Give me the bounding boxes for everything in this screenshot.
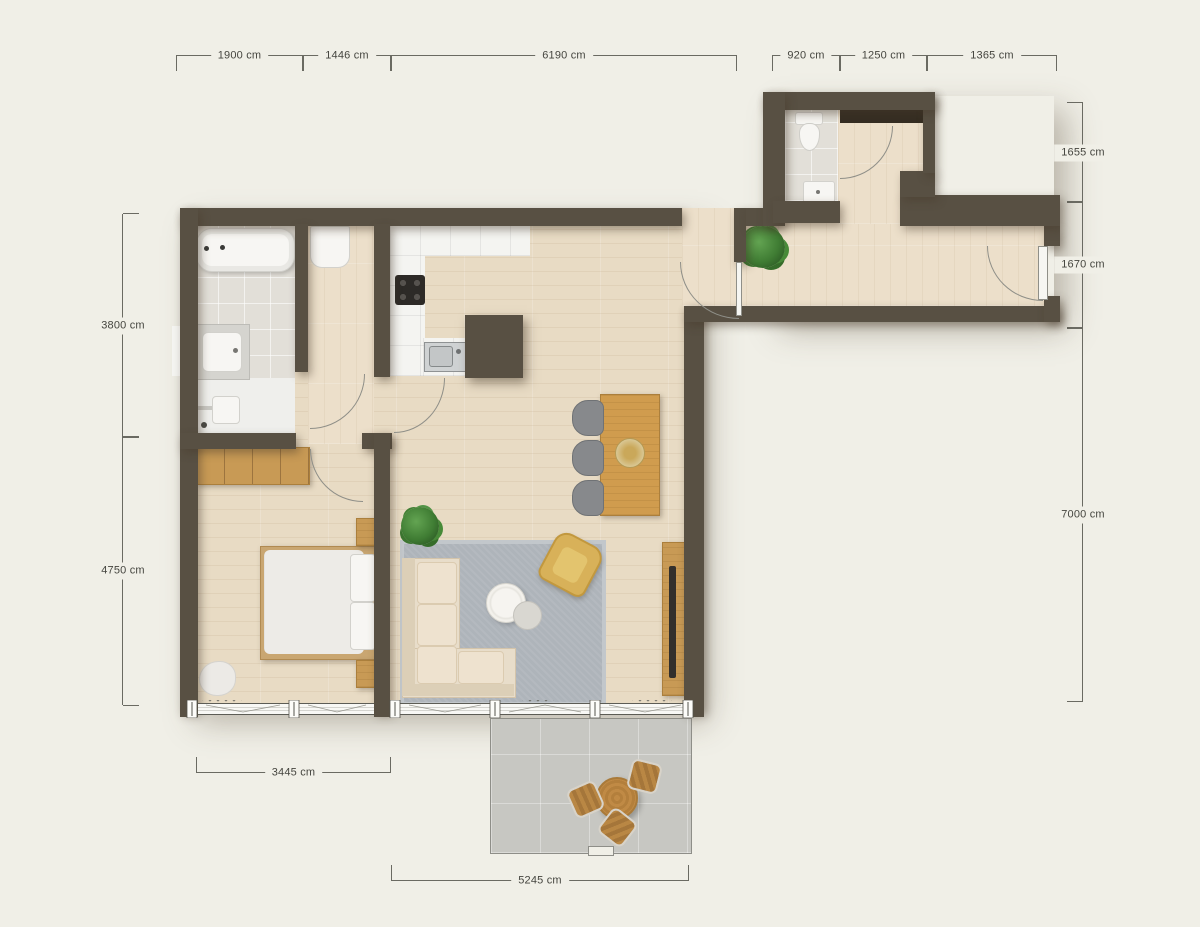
sofa-back-bottom <box>402 684 514 696</box>
wc-sink-tap <box>816 190 820 194</box>
bathtub-drain <box>204 246 209 251</box>
dim-bottom-2: 5245 cm <box>391 880 689 881</box>
dining-chair-2 <box>572 440 604 476</box>
sofa-cushion-4 <box>458 651 504 684</box>
sofa-back-left <box>402 558 415 696</box>
dim-top-4: 920 cm <box>772 55 840 56</box>
washing-machine <box>310 226 350 268</box>
sofa-cushion-2 <box>417 604 457 646</box>
wall-left <box>180 208 198 712</box>
dim-right-3: 7000 cm <box>1082 328 1083 701</box>
dim-right-2: 1670 cm <box>1082 202 1083 328</box>
entrance-door-leaf <box>1038 246 1048 300</box>
wall-wc-bottom <box>773 201 840 223</box>
coffee-table-small <box>513 601 542 630</box>
dim-label: 4750 cm <box>94 563 152 580</box>
wall-bathroom-right <box>295 224 308 372</box>
floor-plan: 1900 cm 1446 cm 6190 cm 920 cm 1250 cm 1… <box>0 0 1200 927</box>
kitchen-sink-basin <box>429 346 453 367</box>
dim-right-1: 1655 cm <box>1082 103 1083 202</box>
dim-label: 920 cm <box>780 48 831 65</box>
dim-label: 3445 cm <box>265 765 323 782</box>
dim-left-2: 4750 cm <box>122 437 123 705</box>
wall-top-main <box>180 208 682 226</box>
dim-label: 6190 cm <box>535 48 593 65</box>
bathroom-sink-tap <box>233 348 238 353</box>
dim-top-3: 6190 cm <box>391 55 737 56</box>
dim-bottom-1: 3445 cm <box>196 772 391 773</box>
bed-pillow-2 <box>350 602 376 650</box>
dim-label: 1670 cm <box>1054 257 1112 274</box>
dim-top-2: 1446 cm <box>303 55 391 56</box>
wall-entrance-top-jamb <box>1044 226 1060 246</box>
plant-living-icon <box>401 507 439 545</box>
dim-top-1: 1900 cm <box>176 55 303 56</box>
dim-top-5: 1250 cm <box>840 55 927 56</box>
cooktop <box>395 275 425 305</box>
entry-closet <box>840 108 923 123</box>
plant-corridor-icon <box>741 226 785 268</box>
pouf <box>199 661 236 696</box>
corridor-door-leaf <box>736 262 742 316</box>
wall-living-right <box>684 306 704 712</box>
wall-entry-step <box>900 171 935 197</box>
wall-corridor-top-right <box>900 195 1060 226</box>
dim-label: 5245 cm <box>511 873 569 890</box>
tv <box>669 566 676 678</box>
shower-unit <box>212 396 240 424</box>
shower-pipe <box>198 406 212 410</box>
dim-top-6: 1365 cm <box>927 55 1057 56</box>
shower-drain <box>201 422 207 428</box>
dim-label: 1250 cm <box>855 48 913 65</box>
wall-hallway-right-upper <box>374 224 390 377</box>
wall-wc-top <box>763 92 935 110</box>
wall-bedroom-right <box>374 433 390 712</box>
wall-door-stub <box>734 208 746 262</box>
dining-chair-1 <box>572 400 604 436</box>
bathtub-faucet <box>220 245 225 250</box>
bathtub <box>196 228 295 272</box>
window-band <box>180 700 704 718</box>
dim-label: 1446 cm <box>318 48 376 65</box>
wall-bathroom-bottom <box>180 433 296 449</box>
radiator-symbols <box>202 700 672 701</box>
sofa-cushion-1 <box>417 562 457 604</box>
dim-left-1: 3800 cm <box>122 214 123 437</box>
bed-pillow-1 <box>350 554 376 602</box>
sofa-cushion-3 <box>417 646 457 684</box>
dining-chair-3 <box>572 480 604 516</box>
bed-mattress <box>264 550 364 654</box>
wardrobe <box>196 447 310 485</box>
terrace-door-marker <box>588 846 614 856</box>
dim-label: 1365 cm <box>963 48 1021 65</box>
dim-label: 1655 cm <box>1054 144 1112 161</box>
dim-label: 7000 cm <box>1054 506 1112 523</box>
dim-label: 1900 cm <box>211 48 269 65</box>
fruit-bowl <box>615 438 645 468</box>
kitchen-column <box>465 315 523 378</box>
kitchen-faucet <box>456 349 461 354</box>
dim-label: 3800 cm <box>94 317 152 334</box>
